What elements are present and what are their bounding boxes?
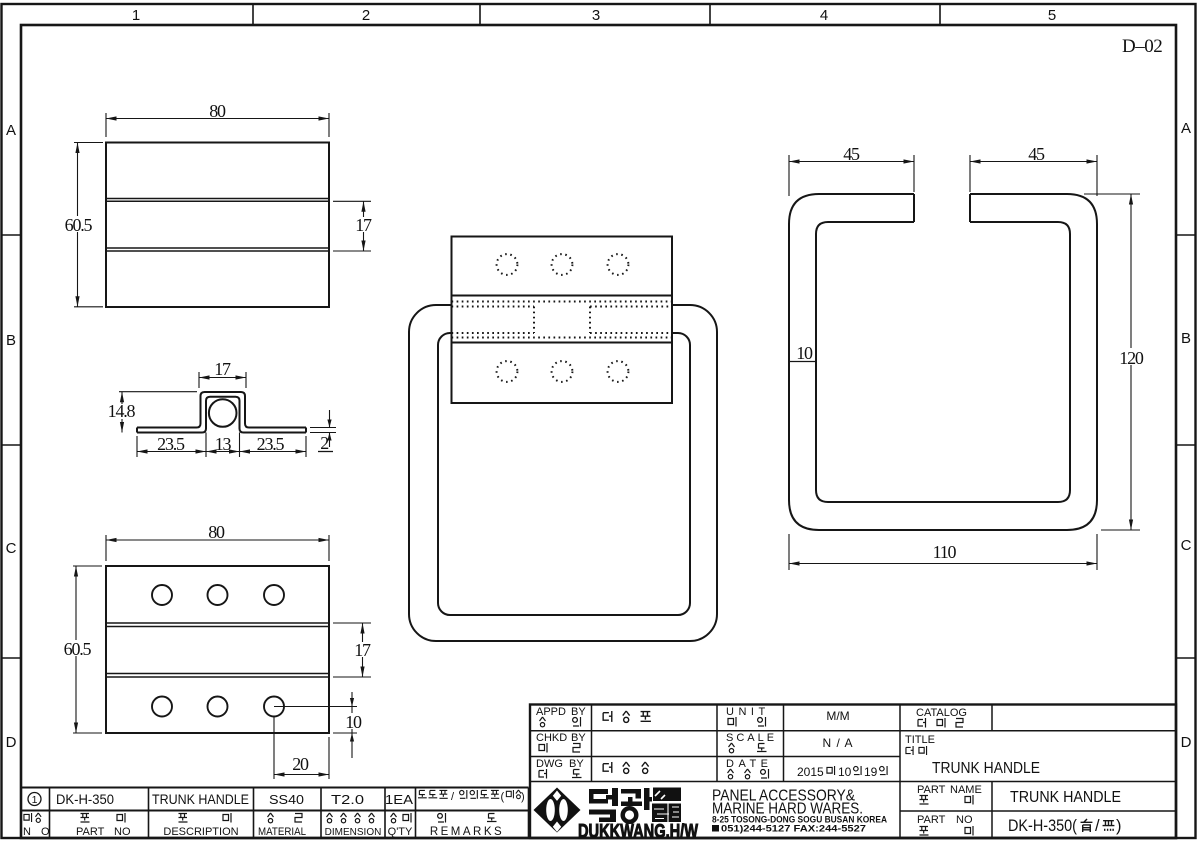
svg-text:4: 4 [820, 7, 828, 24]
svg-text:2: 2 [362, 7, 370, 24]
svg-text:80: 80 [208, 522, 225, 542]
svg-text:CHKD: CHKD [536, 732, 567, 744]
svg-text:REMARKS: REMARKS [430, 826, 504, 838]
svg-text:1EA: 1EA [385, 792, 413, 807]
svg-text:D: D [6, 734, 17, 751]
svg-text:TRUNK HANDLE: TRUNK HANDLE [932, 760, 1040, 777]
svg-text:BY: BY [569, 758, 584, 770]
svg-text:D: D [1181, 734, 1192, 751]
svg-text:DUKKWANG.H/W: DUKKWANG.H/W [578, 821, 698, 843]
svg-text:BY: BY [571, 706, 586, 718]
svg-text:14.8: 14.8 [108, 401, 136, 421]
svg-text:20: 20 [292, 754, 309, 774]
svg-text:120: 120 [1119, 348, 1144, 368]
svg-text:M/M: M/M [826, 709, 849, 723]
svg-text:17: 17 [354, 640, 371, 660]
svg-text:DK-H-350(: DK-H-350( [1008, 817, 1077, 835]
svg-text:SS40: SS40 [269, 792, 304, 807]
svg-text:DESCRIPTION: DESCRIPTION [163, 826, 238, 838]
svg-text:1: 1 [32, 794, 38, 806]
svg-text:2: 2 [320, 433, 328, 453]
svg-text:10: 10 [796, 343, 813, 363]
svg-text:C: C [6, 540, 17, 557]
svg-text:17: 17 [355, 215, 372, 235]
svg-text:B: B [6, 332, 16, 349]
svg-text:DWG: DWG [536, 758, 563, 770]
svg-text:MATERIAL: MATERIAL [258, 826, 306, 838]
svg-text:3: 3 [592, 7, 600, 24]
svg-text:60.5: 60.5 [64, 639, 92, 659]
svg-text:T2.0: T2.0 [331, 792, 364, 807]
svg-text:PART: PART [76, 826, 105, 838]
svg-text:NAME: NAME [950, 784, 982, 796]
svg-text:80: 80 [209, 101, 226, 121]
svg-text:(: ( [501, 791, 505, 803]
svg-text:B: B [1181, 330, 1191, 347]
svg-text:13: 13 [215, 434, 232, 454]
svg-text:TRUNK HANDLE: TRUNK HANDLE [1010, 789, 1121, 806]
svg-text:BY: BY [571, 732, 586, 744]
svg-text:DIMENSION: DIMENSION [325, 827, 382, 838]
svg-text:5: 5 [1048, 7, 1056, 24]
svg-text:/: / [1095, 817, 1100, 835]
svg-text:D–02: D–02 [1122, 36, 1162, 57]
svg-text:NO: NO [956, 814, 973, 826]
svg-text:C: C [1181, 537, 1192, 554]
svg-text:051)244-5127 FAX:244-5527: 051)244-5127 FAX:244-5527 [721, 824, 866, 834]
svg-text:110: 110 [933, 542, 957, 562]
svg-text:DATE: DATE [726, 758, 773, 770]
svg-text:45: 45 [843, 144, 860, 164]
svg-text:N / A: N / A [822, 736, 853, 750]
svg-text:23.5: 23.5 [257, 434, 285, 454]
svg-text:17: 17 [214, 359, 231, 379]
svg-text:Q'TY: Q'TY [388, 826, 413, 838]
svg-text:60.5: 60.5 [65, 215, 93, 235]
svg-text:45: 45 [1028, 144, 1045, 164]
svg-text:TRUNK HANDLE: TRUNK HANDLE [152, 792, 249, 807]
svg-text:2015: 2015 [797, 765, 824, 779]
svg-text:): ) [1116, 817, 1122, 835]
svg-text:10: 10 [838, 765, 852, 779]
svg-text:10: 10 [345, 712, 362, 732]
svg-text:23.5: 23.5 [157, 434, 185, 454]
svg-text:PART: PART [917, 784, 946, 796]
svg-text:A: A [1181, 120, 1191, 137]
svg-text:SCALE: SCALE [726, 732, 777, 744]
svg-text:): ) [521, 791, 525, 803]
svg-text:CATALOG: CATALOG [916, 707, 967, 719]
svg-text:1: 1 [132, 7, 140, 24]
svg-text:A: A [6, 122, 16, 139]
svg-text:NO: NO [114, 826, 131, 838]
svg-text:APPD: APPD [536, 706, 566, 718]
svg-text:19: 19 [864, 765, 878, 779]
svg-text:PART: PART [917, 814, 946, 826]
svg-text:DK-H-350: DK-H-350 [56, 791, 114, 807]
svg-text:UNIT: UNIT [726, 706, 770, 718]
svg-text:TITLE: TITLE [905, 734, 935, 746]
svg-text:N O: N O [23, 826, 53, 838]
